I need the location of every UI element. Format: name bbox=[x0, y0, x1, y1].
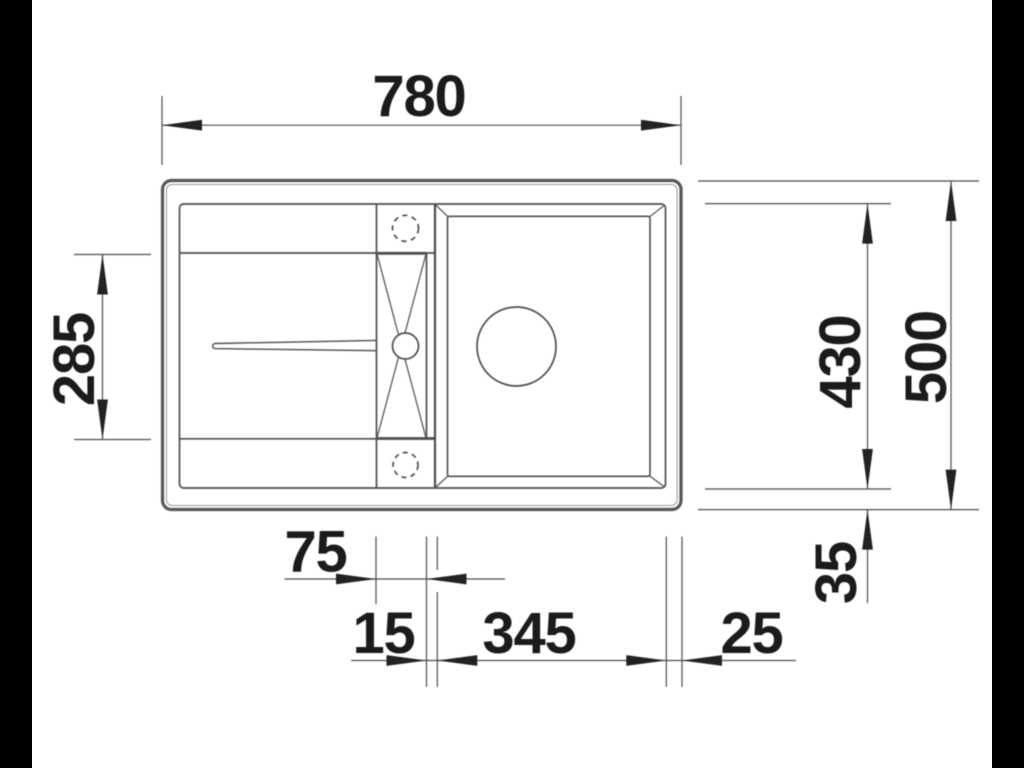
svg-text:285: 285 bbox=[42, 313, 107, 406]
svg-text:25: 25 bbox=[720, 601, 782, 666]
svg-text:75: 75 bbox=[284, 520, 346, 585]
svg-text:35: 35 bbox=[804, 542, 869, 604]
svg-text:780: 780 bbox=[372, 64, 465, 129]
svg-text:345: 345 bbox=[482, 601, 575, 666]
svg-text:500: 500 bbox=[894, 311, 959, 404]
svg-text:15: 15 bbox=[352, 601, 414, 666]
svg-text:430: 430 bbox=[808, 315, 873, 408]
